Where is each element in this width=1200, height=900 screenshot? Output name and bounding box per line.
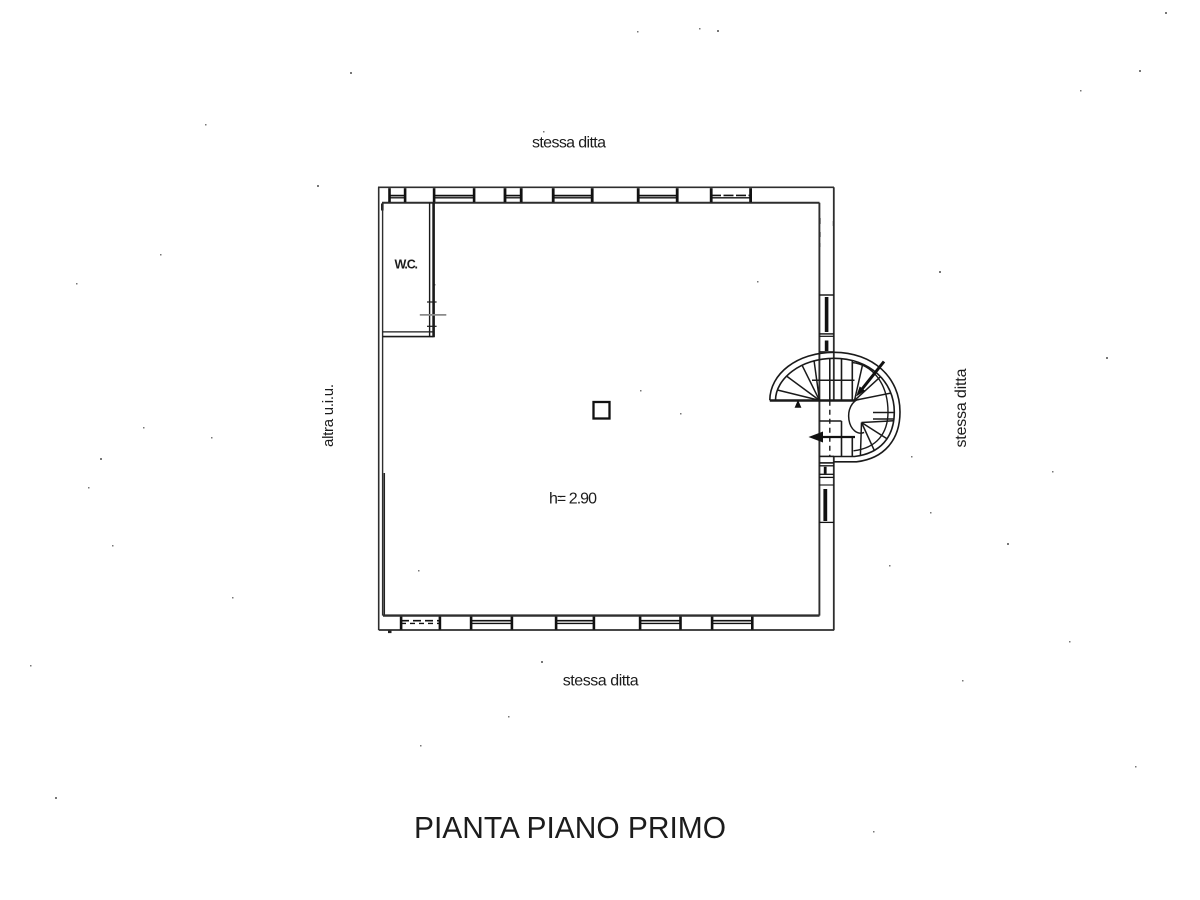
svg-text:stessa ditta: stessa ditta	[563, 673, 639, 690]
svg-text:h= 2.90: h= 2.90	[549, 491, 597, 508]
svg-text:W.C.: W.C.	[395, 258, 419, 272]
svg-text:altra u.i.u.: altra u.i.u.	[320, 384, 337, 447]
svg-text:stessa ditta: stessa ditta	[953, 368, 970, 447]
svg-text:PIANTA PIANO PRIMO: PIANTA PIANO PRIMO	[414, 810, 726, 845]
svg-text:stessa ditta: stessa ditta	[532, 135, 606, 152]
